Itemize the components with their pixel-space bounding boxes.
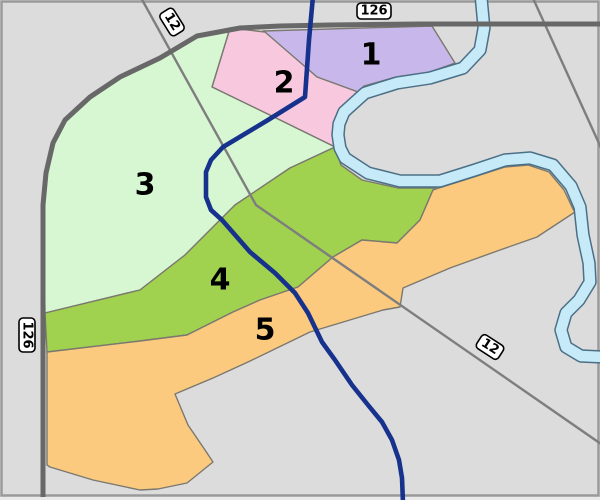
zone-3-label: 3 bbox=[135, 168, 156, 203]
zone-5-label: 5 bbox=[255, 313, 276, 348]
zone-2-label: 2 bbox=[274, 66, 295, 101]
route-shield-label: 126 bbox=[20, 321, 35, 348]
route-shield-label: 126 bbox=[360, 4, 387, 19]
zone-4-label: 4 bbox=[210, 263, 231, 298]
route-shield-126-1: 126 bbox=[357, 3, 391, 19]
map: 121261261212345 bbox=[0, 0, 600, 500]
route-shield-126-2: 126 bbox=[19, 318, 35, 352]
zone-1-label: 1 bbox=[361, 38, 382, 73]
map-canvas: 121261261212345 bbox=[0, 0, 600, 500]
